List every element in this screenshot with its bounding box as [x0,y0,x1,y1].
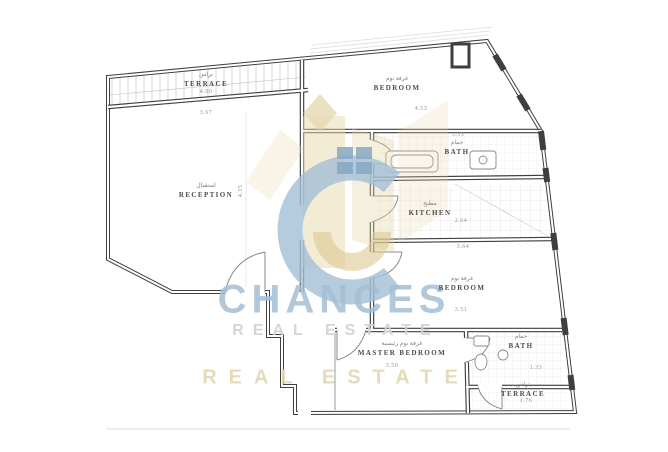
floor-plan-page: CHANCES REAL ESTATE REAL ESTATE تراس TER… [0,0,668,452]
logo-building-icon [246,94,448,292]
watermark-logo [0,0,668,452]
